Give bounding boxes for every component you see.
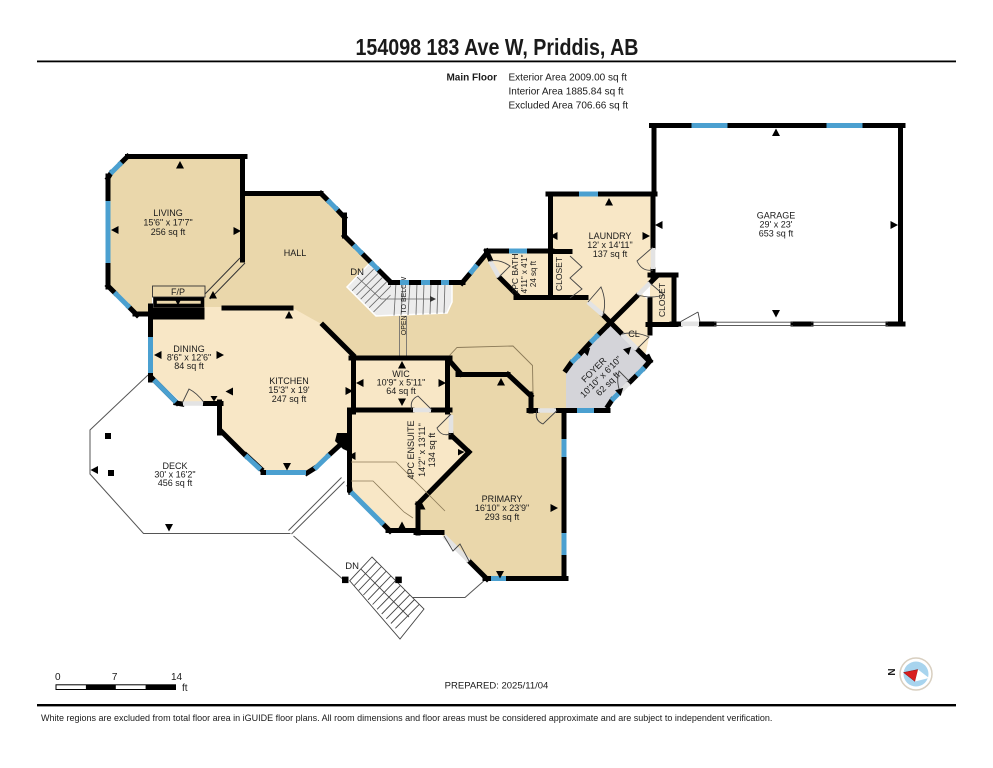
svg-text:84 sq ft: 84 sq ft — [174, 361, 204, 371]
svg-text:154098 183 Ave W, Priddis, AB: 154098 183 Ave W, Priddis, AB — [356, 34, 639, 60]
svg-text:Main Floor: Main Floor — [446, 73, 497, 84]
svg-text:Interior Area 1885.84 sq ft: Interior Area 1885.84 sq ft — [509, 87, 624, 98]
svg-text:ft: ft — [182, 683, 188, 694]
svg-text:CLOSET: CLOSET — [657, 283, 667, 317]
svg-text:14: 14 — [171, 672, 183, 683]
svg-text:Exterior Area 2009.00 sq ft: Exterior Area 2009.00 sq ft — [509, 73, 628, 84]
svg-text:CLOSET: CLOSET — [554, 257, 564, 291]
svg-text:256 sq ft: 256 sq ft — [151, 227, 186, 237]
svg-text:2PC BATH: 2PC BATH — [510, 254, 520, 295]
svg-text:DN: DN — [350, 267, 364, 278]
svg-text:0: 0 — [55, 672, 61, 683]
svg-text:7: 7 — [112, 672, 118, 683]
svg-text:HALL: HALL — [284, 248, 307, 258]
svg-text:456 sq ft: 456 sq ft — [158, 478, 193, 488]
svg-text:134 sq ft: 134 sq ft — [427, 432, 437, 467]
svg-text:LIVING: LIVING — [153, 208, 183, 218]
svg-text:Excluded Area 706.66 sq ft: Excluded Area 706.66 sq ft — [509, 101, 629, 112]
svg-text:F/P: F/P — [171, 287, 185, 297]
svg-text:DN: DN — [345, 561, 359, 572]
svg-text:14'2" x 13'11": 14'2" x 13'11" — [417, 423, 427, 477]
svg-text:PREPARED: 2025/11/04: PREPARED: 2025/11/04 — [445, 681, 549, 692]
svg-text:653 sq ft: 653 sq ft — [759, 229, 794, 239]
svg-text:15'6" x 17'7": 15'6" x 17'7" — [143, 218, 192, 228]
svg-text:White regions are excluded fro: White regions are excluded from total fl… — [41, 713, 772, 723]
svg-text:137 sq ft: 137 sq ft — [593, 249, 628, 259]
svg-text:N: N — [887, 668, 898, 675]
svg-text:CL: CL — [628, 329, 640, 339]
svg-text:4PC ENSUITE: 4PC ENSUITE — [406, 420, 416, 479]
svg-text:64 sq ft: 64 sq ft — [386, 386, 416, 396]
svg-text:OPEN TO BELOW: OPEN TO BELOW — [401, 276, 408, 335]
svg-text:247 sq ft: 247 sq ft — [272, 394, 307, 404]
svg-text:4'11" x 4'1": 4'11" x 4'1" — [520, 254, 529, 293]
svg-text:293 sq ft: 293 sq ft — [485, 512, 520, 522]
svg-text:24 sq ft: 24 sq ft — [529, 260, 538, 287]
